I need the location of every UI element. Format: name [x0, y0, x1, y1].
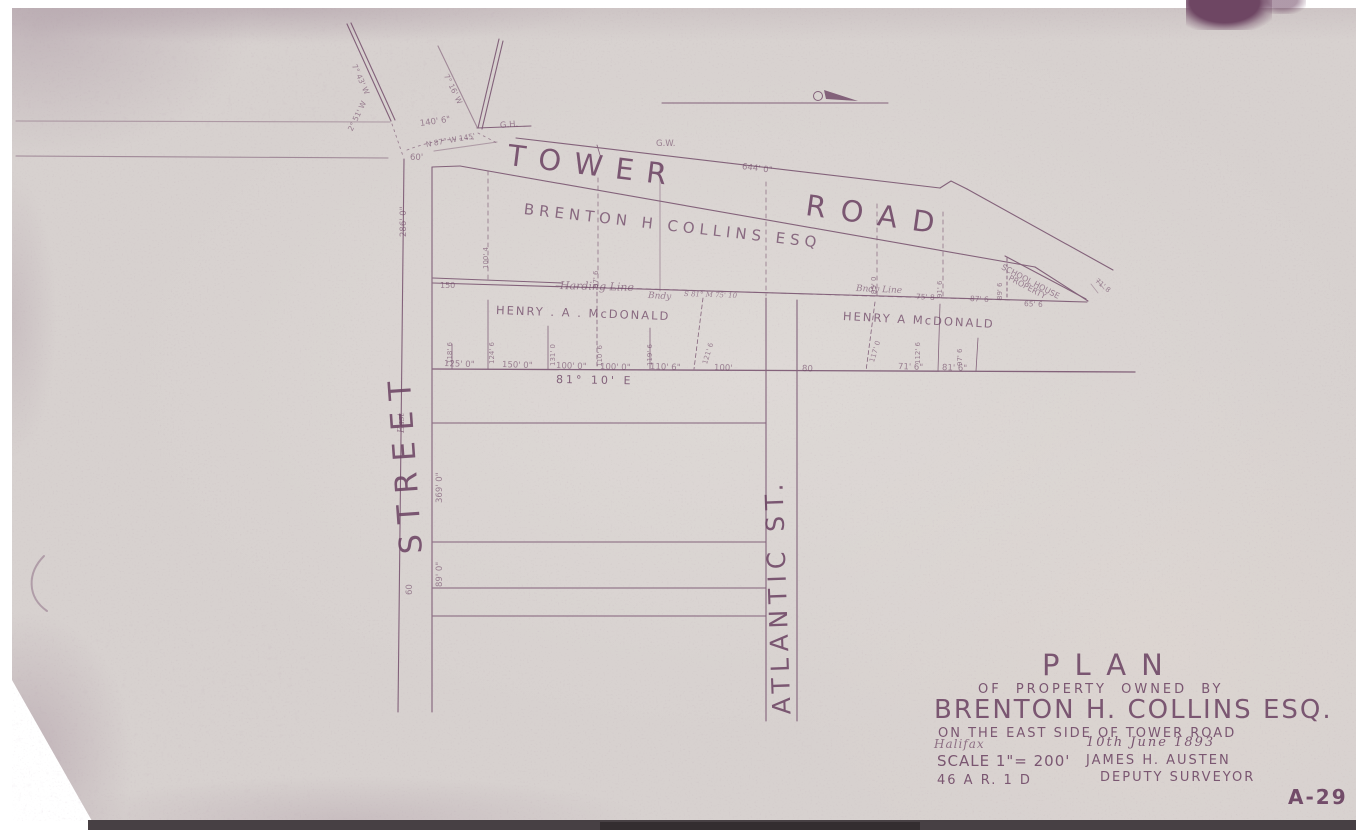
dim-street-lower: 89' 0": [435, 562, 445, 587]
dim-street-top: 60': [410, 153, 423, 163]
dim-lot-depth: 97' 6: [956, 348, 964, 366]
gh-mark-1: G.H.: [500, 119, 519, 131]
title-scale: SCALE 1"= 200': [937, 752, 1070, 770]
dim-lot-frontage: 150' 0": [502, 360, 533, 371]
dim-tip: 75' 8: [916, 292, 935, 302]
title-place: Halifax: [934, 737, 985, 751]
dim-tip: 65' 6: [1024, 299, 1043, 309]
dim-lot-depth: 119' 6: [646, 344, 654, 366]
dim-lot-frontage: 100': [714, 363, 733, 374]
title-surveyor-title: DEPUTY SURVEYOR: [1100, 770, 1255, 785]
dim-street-mid: 369' 0": [435, 472, 445, 503]
dim-lot-depth: 110' 6: [596, 345, 604, 367]
sheet-number: A-29: [1288, 785, 1348, 809]
dim-lot-depth: 97' 6: [592, 270, 600, 288]
dim-street-upper: 286' 0": [399, 206, 409, 237]
title-file-ref: 46 A R. 1 D: [937, 773, 1032, 788]
plan-sheet: TOWER ROAD STREET East ATLANTIC ST. BREN…: [0, 0, 1356, 830]
scan-bottom-strip-dark: [600, 822, 920, 830]
dim-lot-depth: 95' 0: [870, 276, 878, 294]
dim-lot-frontage: 80: [802, 364, 813, 374]
title-date: 10th June 1893: [1086, 735, 1215, 750]
bndy-west-note: Bndy: [648, 291, 672, 302]
dim-lot-depth: 112' 6: [914, 342, 922, 364]
gh-mark-2: G.W.: [656, 139, 675, 149]
dim-lot-frontage: 100' 0": [600, 362, 631, 373]
south-bearing-note: 81° 10' E: [556, 373, 634, 387]
dim-street-width: 60: [405, 584, 415, 595]
dim-lot-depth: 100' 4: [482, 247, 490, 269]
title-owner: BRENTON H. COLLINS ESQ.: [934, 695, 1333, 725]
dim-lot-depth: 131' 0: [549, 344, 557, 366]
dim-lot-depth: 91' 6: [936, 280, 944, 298]
dim-lot-depth: 124' 6: [488, 342, 496, 364]
dim-collins-150: 150: [440, 281, 455, 290]
dim-tip: 87' 6: [970, 294, 989, 304]
street-small-note: East: [397, 413, 407, 433]
dim-lot-frontage: 100' 0": [556, 361, 587, 372]
dim-lot-frontage: 110' 6": [650, 362, 681, 373]
dim-lot-depth: 89' 6: [996, 282, 1004, 300]
title-plan: PLAN: [1042, 648, 1178, 682]
title-surveyor: JAMES H. AUSTEN: [1086, 753, 1231, 768]
bndy-east-note: Bndy Line: [856, 284, 903, 296]
dim-lot-depth: 118' 6: [446, 342, 454, 364]
scanned-survey-plan: { "sheet": { "number": "A-29" }, "title_…: [0, 0, 1356, 830]
ink-blot-top-right-small: [1258, 0, 1306, 14]
